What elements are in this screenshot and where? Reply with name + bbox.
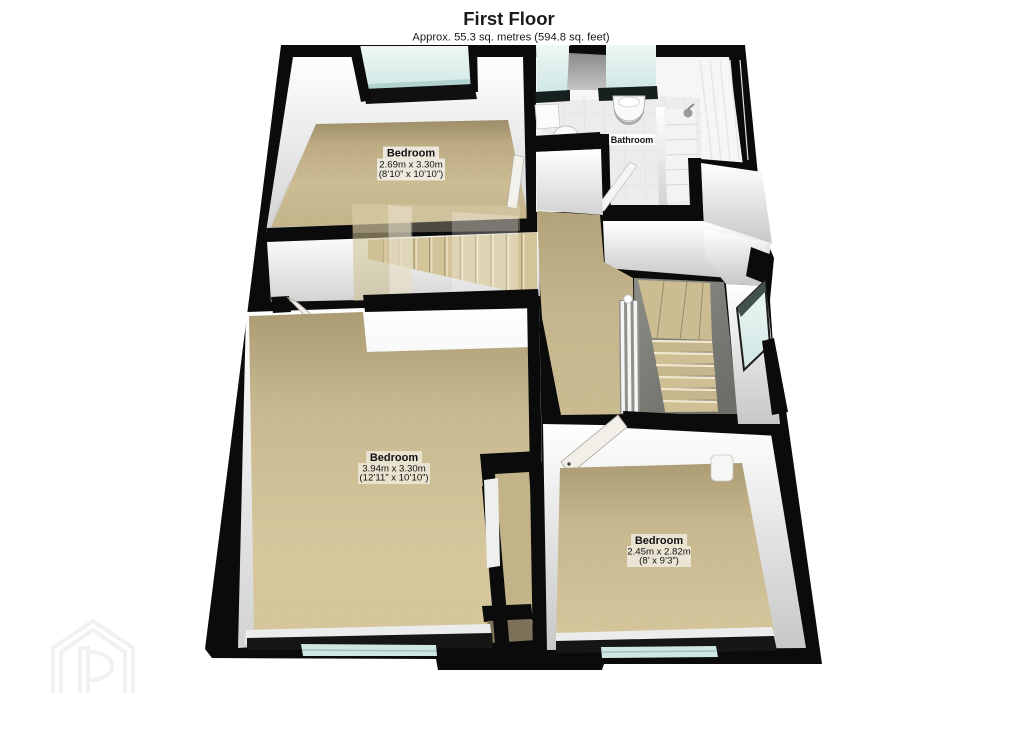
svg-text:(12’11” x 10’10”): (12’11” x 10’10”) <box>359 473 428 484</box>
svg-text:Bedroom: Bedroom <box>370 452 419 464</box>
svg-text:Bathroom: Bathroom <box>611 135 654 145</box>
svg-text:Approx. 55.3 sq. metres (594.8: Approx. 55.3 sq. metres (594.8 sq. feet) <box>412 32 609 44</box>
svg-text:First Floor: First Floor <box>463 8 554 29</box>
svg-text:(8’ x 9’3”): (8’ x 9’3”) <box>639 556 679 567</box>
svg-text:Bedroom: Bedroom <box>387 148 436 160</box>
svg-text:Bedroom: Bedroom <box>635 535 684 547</box>
svg-text:(8’10” x 10’10”): (8’10” x 10’10”) <box>379 169 444 180</box>
